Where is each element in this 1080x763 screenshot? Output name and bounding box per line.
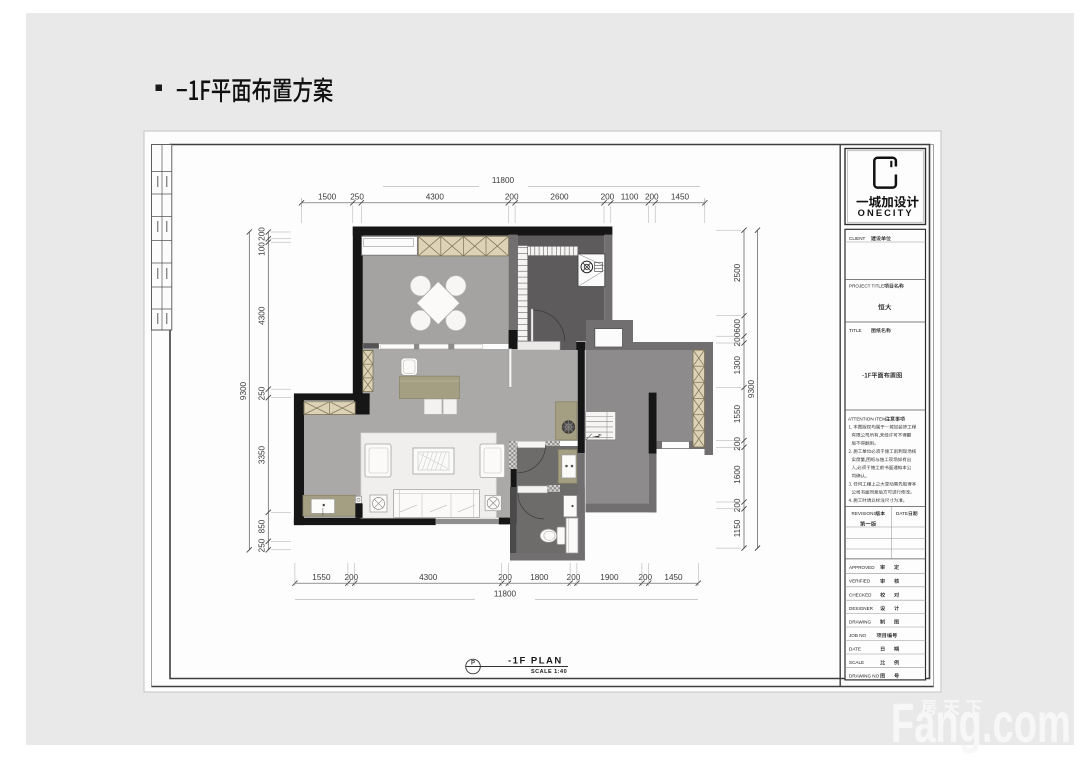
svg-text:200: 200 [733,437,742,451]
svg-text:850: 850 [257,519,266,533]
svg-text:200: 200 [733,332,742,346]
svg-text:600: 600 [733,319,742,333]
svg-text:P: P [471,661,475,667]
svg-text:3350: 3350 [257,445,266,464]
svg-text:250: 250 [350,193,364,202]
svg-text:200: 200 [567,573,581,582]
svg-text:ATTENTION ITEM: ATTENTION ITEM [848,417,886,422]
svg-text:200: 200 [498,573,512,582]
svg-text:9300: 9300 [239,381,248,400]
svg-text:250: 250 [257,386,266,400]
svg-text:4300: 4300 [419,573,438,582]
svg-text:250: 250 [257,538,266,552]
svg-text:200: 200 [638,573,652,582]
svg-text:PROJECT TITLE: PROJECT TITLE [849,284,884,289]
svg-text:1500: 1500 [318,193,337,202]
svg-text:DRAWING: DRAWING [849,619,871,624]
svg-text:9300: 9300 [747,379,756,398]
svg-text:200: 200 [344,573,358,582]
svg-text:1550: 1550 [312,573,331,582]
svg-text:200: 200 [257,227,266,241]
svg-text:ONECITY: ONECITY [858,208,914,218]
svg-text:APPROVED: APPROVED [849,565,875,570]
svg-text:DATE: DATE [849,647,861,652]
svg-text:CLIENT: CLIENT [849,236,866,241]
svg-text:2600: 2600 [550,193,569,202]
svg-text:SCALE: SCALE [849,660,864,665]
svg-text:200: 200 [601,193,615,202]
svg-text:2500: 2500 [733,263,742,282]
svg-text:1300: 1300 [733,356,742,375]
svg-text:11800: 11800 [494,590,517,599]
svg-text:JOB NO: JOB NO [849,633,867,638]
svg-text:TITLE: TITLE [849,328,862,333]
svg-text:200: 200 [733,498,742,512]
svg-text:1900: 1900 [600,573,619,582]
svg-text:Fang.com: Fang.com [891,693,1071,755]
svg-text:200: 200 [645,193,659,202]
svg-text:4300: 4300 [426,193,445,202]
svg-text:DRAWING NO: DRAWING NO [849,674,880,679]
svg-text:REVISIONS: REVISIONS [852,511,877,516]
svg-text:100: 100 [257,242,266,256]
svg-text:1800: 1800 [530,573,549,582]
svg-text:1450: 1450 [671,193,690,202]
svg-text:VERIFIED: VERIFIED [849,579,871,584]
svg-text:SCALE 1:40: SCALE 1:40 [531,669,567,675]
svg-text:-1F PLAN: -1F PLAN [508,656,563,667]
svg-text:DATE: DATE [896,511,908,516]
svg-text:200: 200 [505,193,519,202]
svg-text:4300: 4300 [257,306,266,325]
svg-text:1550: 1550 [733,404,742,423]
svg-text:DESIGNER: DESIGNER [849,606,874,611]
svg-text:11800: 11800 [492,176,515,185]
svg-text:1450: 1450 [664,573,683,582]
svg-text:1100: 1100 [621,193,639,202]
svg-text:1600: 1600 [733,465,742,484]
svg-text:CHECKED: CHECKED [849,593,872,598]
svg-text:1150: 1150 [733,519,742,537]
